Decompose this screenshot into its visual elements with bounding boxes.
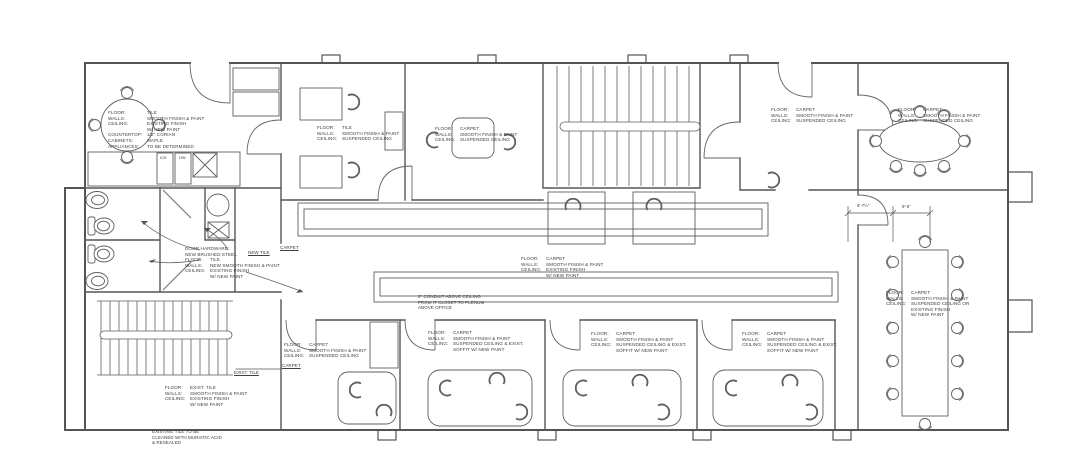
conference-main-room-spec: FLOOR:CARPETWALLS:SMOOTH FINISH & PAINTC…: [886, 290, 969, 318]
floor-plan-drawing: [0, 0, 1079, 471]
ice-maker-label: ICE: [160, 155, 167, 160]
water-heater: [207, 194, 229, 216]
floor-finish-label-exist-tile: EXIST. TILE: [234, 370, 259, 375]
floor-plan-sheet: FLOOR:TILEWALLS:SMOOTH FINISH & PAINTCEI…: [0, 0, 1079, 471]
office-b3-room-spec: FLOOR:CARPETWALLS:SMOOTH FINISH & PAINTC…: [591, 331, 687, 353]
floor-finish-label-carpet-lower: CARPET: [282, 363, 301, 368]
conference-table: [902, 250, 948, 416]
conduit-note: 2" CONDUIT ABOVE CEILING FROM IT CLOSET …: [418, 294, 484, 311]
stairs-upper: [557, 66, 700, 186]
sink: [86, 273, 108, 290]
conference-upper-room-spec: FLOOR:CARPETWALLS:SMOOTH FINISH & PAINTC…: [898, 107, 980, 124]
stairs-lower: [97, 301, 233, 375]
equipment-box: [208, 222, 229, 238]
sink: [86, 192, 108, 209]
systems-furniture-band: [298, 203, 768, 236]
office-b1-room-spec: FLOOR:CARPETWALLS:SMOOTH FINISH & PAINTC…: [284, 342, 366, 359]
cabinet: [233, 92, 279, 116]
existing-tile-note: EXISTING TILE TO BE CLEANED WITH MURIATI…: [152, 429, 222, 446]
kitchen-furniture: [88, 68, 279, 238]
office-b2-room-spec: FLOOR:CARPETWALLS:SMOOTH FINISH & PAINTC…: [428, 330, 524, 352]
office-tile-room-spec: FLOOR:TILEWALLS:SMOOTH FINISH & PAINTCEI…: [317, 125, 399, 142]
toilet: [88, 245, 114, 263]
floor-finish-label-carpet-upper: CARPET: [280, 245, 299, 250]
dimension-label-2: 9'-6": [902, 204, 911, 209]
desk: [338, 372, 396, 424]
desk: [563, 370, 681, 426]
toilet: [88, 217, 114, 235]
kitchen-room-spec: FLOOR:TILEWALLS:SMOOTH FINISH & PAINTCEI…: [108, 110, 204, 149]
dishwasher-label: DW: [179, 155, 186, 160]
office-b4-room-spec: FLOOR:CARPETWALLS:SMOOTH FINISH & PAINTC…: [742, 331, 838, 353]
cabinet: [233, 68, 279, 90]
office-carpet-top-room-spec: FLOOR:CARPETWALLS:SMOOTH FINISH & PAINTC…: [435, 126, 517, 143]
office-d-room-spec: FLOOR:CARPETWALLS:SMOOTH FINISH & PAINTC…: [771, 107, 853, 124]
stair-lobby-room-spec: FLOOR:EXIST. TILEWALLS:SMOOTH FINISH & P…: [165, 385, 247, 407]
desk: [300, 88, 342, 120]
oval-table: [879, 120, 961, 162]
file-cabinet: [370, 322, 398, 368]
desk: [300, 156, 342, 188]
floor-finish-label-new-tile: NEW TILE: [248, 250, 270, 255]
dimension-label-1: 8'-7½": [857, 203, 869, 208]
kitchen-sink: [193, 153, 217, 177]
desk: [428, 370, 532, 426]
desk: [713, 370, 823, 426]
corridor-spec: FLOOR:CARPETWALLS:SMOOTH FINISH & PAINTC…: [521, 256, 603, 278]
conference-main-furniture: [887, 236, 964, 431]
